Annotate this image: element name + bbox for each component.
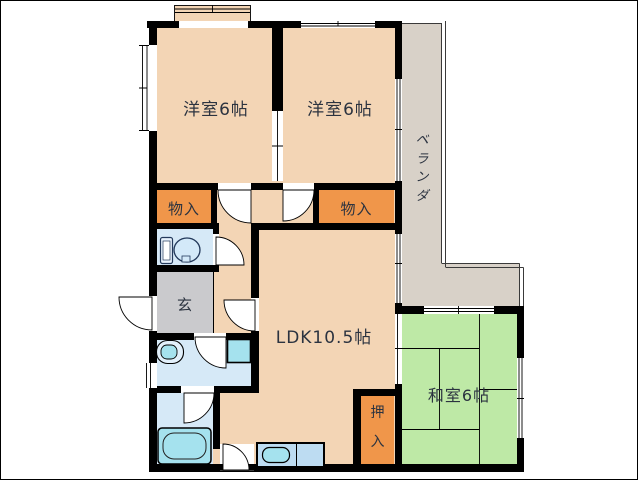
- room-label-bedroom1: 洋室6帖: [156, 95, 276, 120]
- room-label-entrance: 玄: [157, 294, 213, 315]
- wall-segment: [213, 393, 220, 449]
- wall-segment: [251, 223, 402, 230]
- wall-segment: [149, 183, 402, 190]
- door-arc-entrance: [119, 297, 152, 330]
- kitchen-counter: [256, 442, 325, 468]
- wall-segment: [149, 333, 259, 340]
- wall-segment: [147, 21, 402, 28]
- room-label-veranda: ベ ラ ン ダ: [411, 132, 433, 206]
- veranda-char: ベ: [415, 132, 428, 151]
- veranda-char: ダ: [415, 188, 428, 207]
- veranda-char: ン: [415, 169, 428, 188]
- room-label-ldk: LDK10.5帖: [254, 323, 394, 348]
- closet-char: 押: [371, 399, 385, 428]
- bay-window: [175, 6, 251, 22]
- closet-char: 入: [371, 428, 385, 457]
- wall-segment: [517, 306, 524, 472]
- floorplan-canvas: 洋室6帖 洋室6帖 ベ ラ ン ダ 物入 物入 玄 LDK10.5帖 和室6帖 …: [0, 0, 638, 480]
- room-toilet: [157, 229, 213, 265]
- room-label-tatami: 和室6帖: [401, 382, 517, 406]
- wall-segment: [395, 230, 402, 234]
- wall-segment: [395, 303, 402, 306]
- wall-segment: [353, 389, 361, 468]
- wall-segment: [251, 230, 259, 333]
- wall-segment: [395, 306, 524, 314]
- wall-segment: [213, 229, 219, 235]
- room-label-storage-left: 物入: [157, 198, 211, 219]
- wall-segment: [149, 386, 259, 393]
- wall-segment: [395, 21, 402, 190]
- room-label-storage-right: 物入: [319, 198, 394, 219]
- room-washroom: [157, 340, 251, 386]
- wall-segment: [149, 223, 219, 229]
- wall-segment: [149, 265, 219, 272]
- room-veranda-horizontal: [402, 263, 520, 306]
- wall-segment: [149, 21, 157, 472]
- room-label-closet: 押 入: [361, 399, 394, 457]
- wall-segment: [149, 464, 524, 472]
- room-label-bedroom2: 洋室6帖: [284, 95, 396, 120]
- room-bathroom: [157, 393, 213, 464]
- veranda-char: ラ: [415, 151, 428, 170]
